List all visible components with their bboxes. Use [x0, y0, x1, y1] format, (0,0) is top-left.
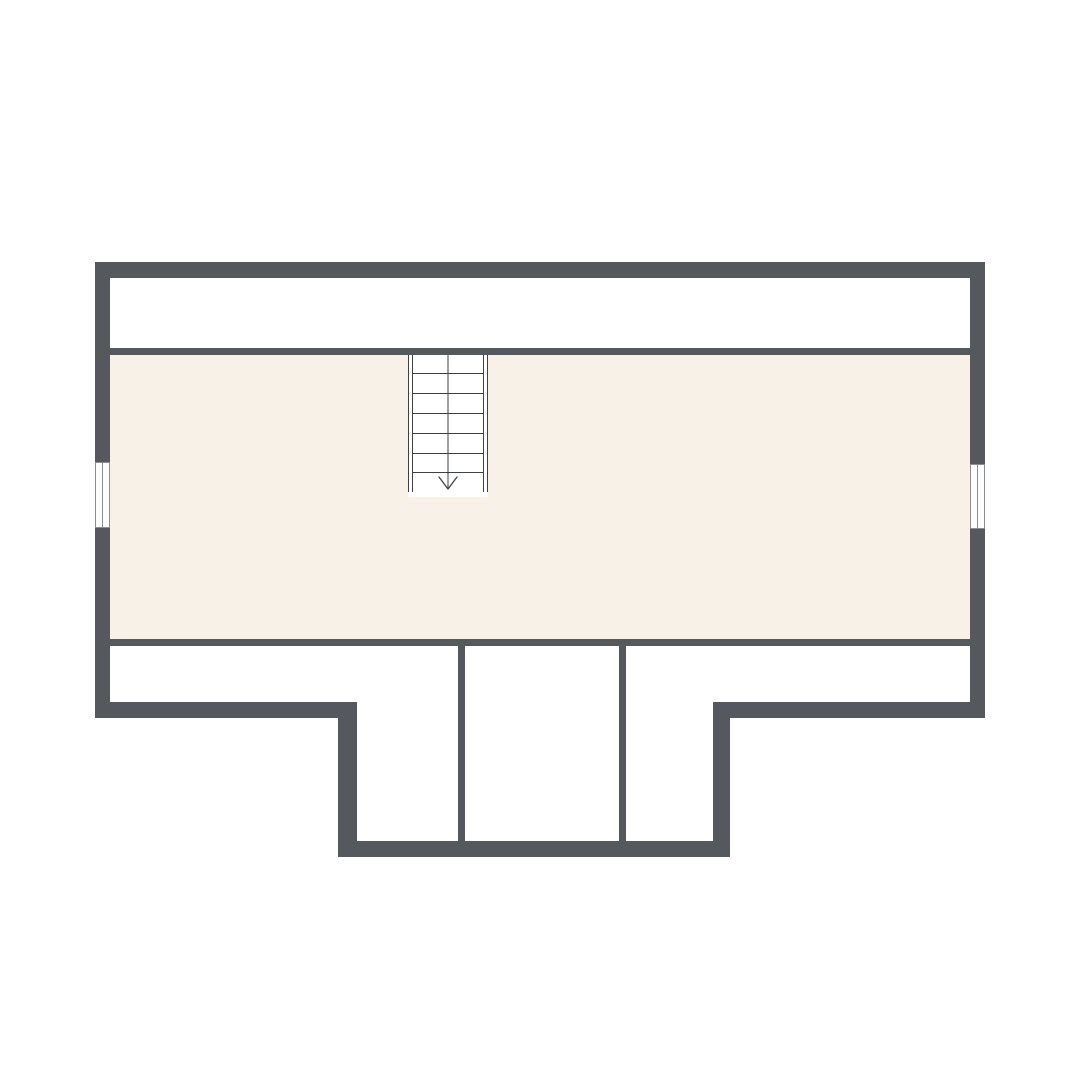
partition-wall-east	[619, 646, 626, 841]
bump-out-wall-east	[713, 702, 730, 857]
partition-wall-west	[458, 646, 465, 841]
bump-out-wall-south	[338, 841, 730, 857]
floorplan-svg	[0, 0, 1080, 1080]
north-eaves-strip	[110, 278, 970, 348]
exterior-wall-south-west-segment	[95, 702, 357, 718]
attic-floor-plan	[0, 0, 1080, 1080]
exterior-wall-north	[95, 262, 985, 278]
exterior-wall-south-east-segment	[713, 702, 985, 718]
bump-out-wall-west	[338, 702, 357, 857]
knee-wall-north	[110, 348, 970, 355]
main-attic-room	[110, 355, 970, 639]
room-wall-south	[110, 639, 970, 646]
